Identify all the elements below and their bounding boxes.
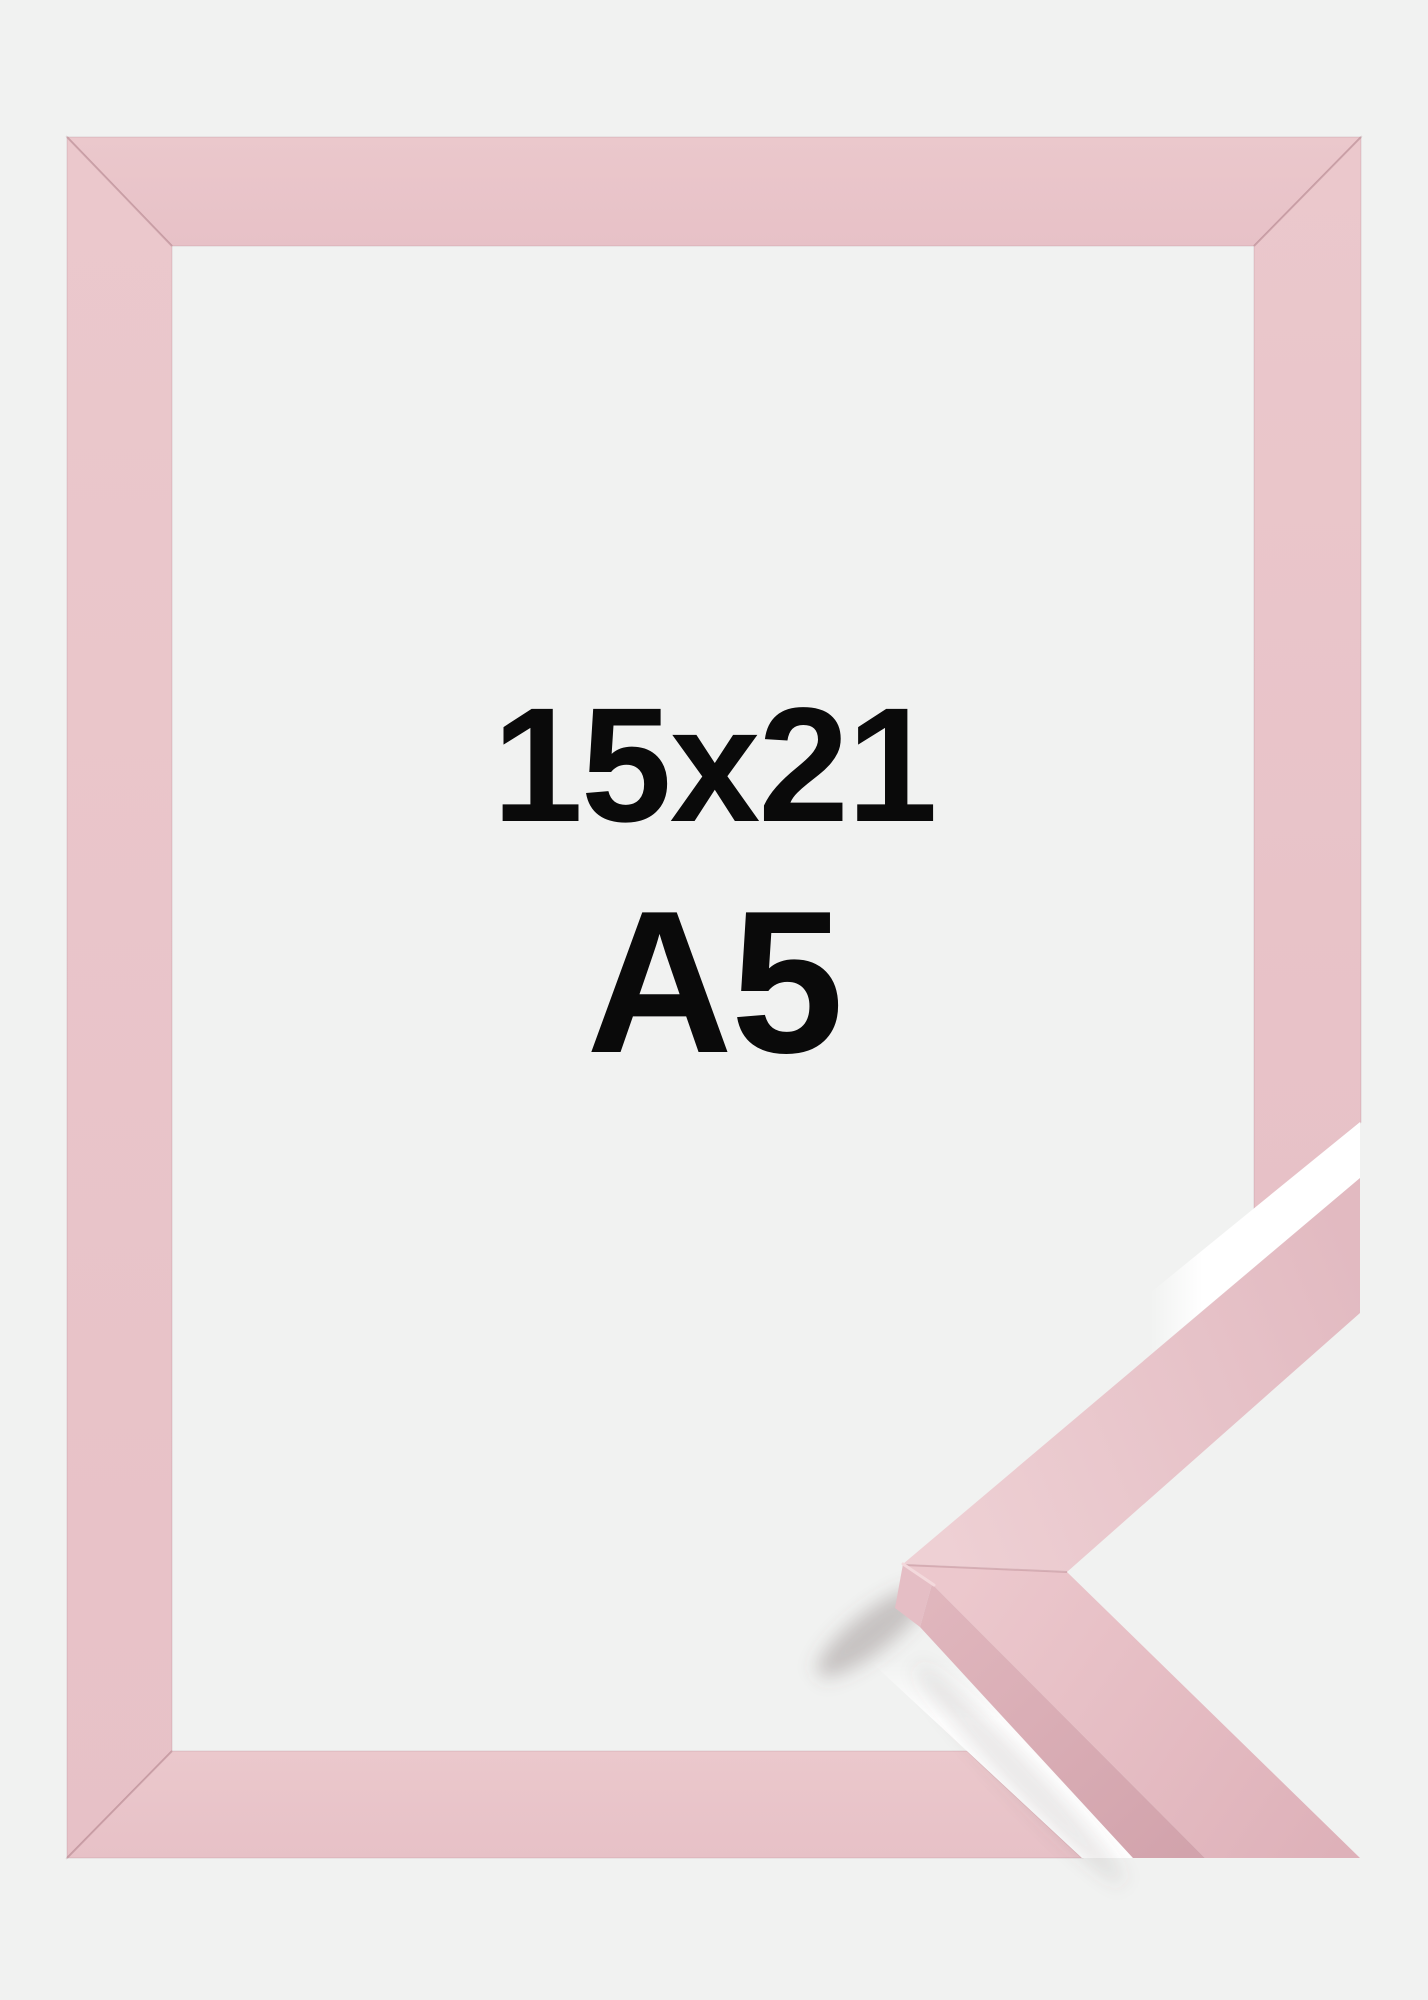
format-label: A5 <box>0 881 1428 1084</box>
product-image: 15x21 A5 <box>0 0 1428 2000</box>
frame-bottom-band <box>67 1751 1082 1858</box>
corner-detail-upper-arm <box>903 1178 1360 1572</box>
size-label: 15x21 <box>0 683 1428 846</box>
frame-top-band <box>67 137 1361 246</box>
